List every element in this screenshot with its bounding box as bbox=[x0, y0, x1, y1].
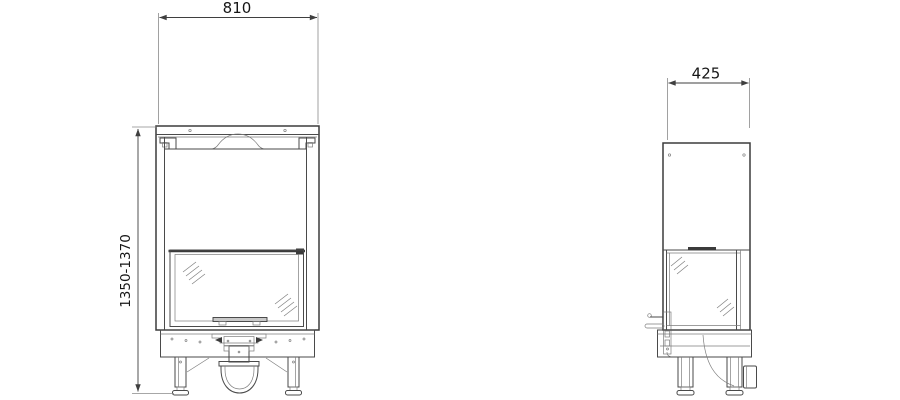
collar-screw-right bbox=[284, 129, 286, 131]
side-junction-box bbox=[744, 366, 757, 388]
air-duct-inner bbox=[225, 366, 254, 389]
base-screws bbox=[171, 338, 305, 343]
foot-right bbox=[286, 391, 302, 396]
front-height-label: 1350-1370 bbox=[118, 234, 134, 308]
front-top-collar bbox=[156, 129, 319, 137]
side-depth-label: 425 bbox=[692, 65, 721, 83]
glass-reflection-hatch-topleft bbox=[183, 262, 205, 284]
door-glass-pane bbox=[175, 255, 299, 322]
door-handle-bar bbox=[213, 318, 267, 326]
leg-brace-right bbox=[266, 358, 287, 372]
foot-left bbox=[173, 391, 189, 396]
side-cable bbox=[703, 335, 734, 386]
side-screw-back bbox=[743, 154, 745, 156]
front-legs bbox=[173, 357, 302, 395]
front-dome-arc bbox=[212, 134, 264, 149]
front-air-intake bbox=[212, 334, 266, 393]
side-foot-right bbox=[726, 391, 743, 396]
side-leg-left bbox=[677, 357, 694, 395]
dim-side-depth: 425 bbox=[668, 65, 750, 141]
side-door-section bbox=[663, 247, 750, 330]
side-foot-left bbox=[677, 391, 694, 396]
technical-drawing-page: 810 1350-1370 425 bbox=[0, 0, 900, 400]
door-hinge-block bbox=[296, 249, 304, 255]
side-screw-front bbox=[668, 154, 670, 156]
front-panel-lines bbox=[165, 137, 307, 330]
side-glass-hatch-topleft bbox=[671, 257, 688, 274]
front-body-outline bbox=[156, 126, 319, 330]
front-glass-door bbox=[169, 249, 306, 327]
side-door-top-rail bbox=[688, 247, 716, 250]
side-base bbox=[658, 330, 752, 357]
side-glass-hatch-bottomright bbox=[717, 299, 734, 316]
side-leg-right bbox=[726, 357, 743, 395]
collar-screw-left bbox=[189, 129, 191, 131]
glass-reflection-hatch-bottomright bbox=[275, 294, 297, 316]
leg-brace-left bbox=[187, 358, 209, 372]
intake-neck bbox=[229, 346, 249, 362]
dim-front-height: 1350-1370 bbox=[118, 127, 174, 394]
drawing-svg: 810 1350-1370 425 bbox=[0, 0, 900, 400]
front-width-label: 810 bbox=[223, 0, 252, 17]
side-legs bbox=[677, 335, 757, 395]
front-leg-right bbox=[286, 357, 302, 395]
front-corner-bracket-left bbox=[160, 138, 176, 149]
front-leg-left bbox=[173, 357, 189, 395]
front-view bbox=[156, 126, 319, 395]
dim-front-width: 810 bbox=[159, 0, 319, 124]
door-frame bbox=[170, 250, 304, 327]
side-view bbox=[645, 143, 757, 395]
